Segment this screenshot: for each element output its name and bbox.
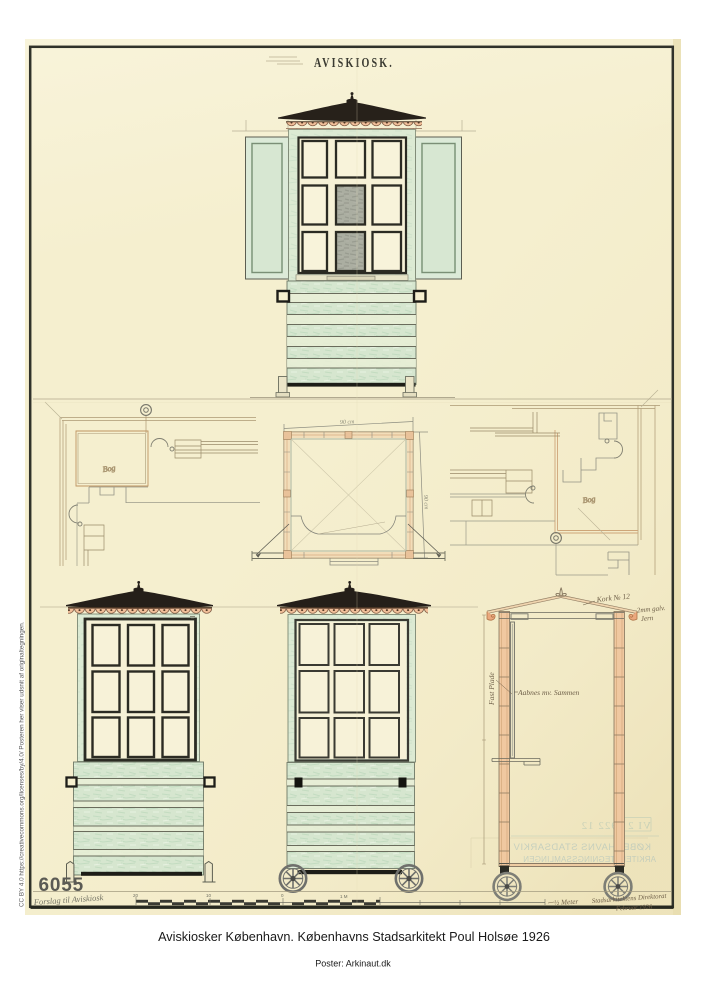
svg-text:Jern: Jern	[640, 614, 654, 623]
svg-text:KØBENHAVNS STADSARKIV: KØBENHAVNS STADSARKIV	[513, 842, 651, 853]
svg-text:Fast Plade: Fast Plade	[487, 672, 496, 706]
svg-text:Bog: Bog	[102, 463, 116, 474]
svg-text:6055: 6055	[39, 875, 84, 896]
svg-text:Aviskiosker København. Københa: Aviskiosker København. Københavns Stadsa…	[158, 930, 550, 944]
svg-text:90 cm: 90 cm	[422, 495, 429, 510]
svg-text:20: 20	[133, 893, 139, 898]
svg-text:AVISKIOSK.: AVISKIOSK.	[314, 56, 394, 71]
svg-text:Bog: Bog	[582, 494, 596, 505]
svg-text:½ Meter: ½ Meter	[554, 898, 579, 907]
svg-text:ARKITEKTTEGNINGSSAMLINGEN: ARKITEKTTEGNINGSSAMLINGEN	[523, 855, 656, 864]
svg-text:CC BY 4.0 https://creativecom: CC BY 4.0 https://creativecommons.org/li…	[19, 621, 26, 907]
svg-text:90 cm: 90 cm	[340, 419, 355, 426]
svg-text:Aabnes mv. Sammen: Aabnes mv. Sammen	[517, 688, 580, 697]
svg-text:10: 10	[206, 893, 212, 898]
svg-text:Poster: Arkinaut.dk: Poster: Arkinaut.dk	[315, 959, 391, 969]
svg-text:1 M: 1 M	[340, 894, 348, 899]
